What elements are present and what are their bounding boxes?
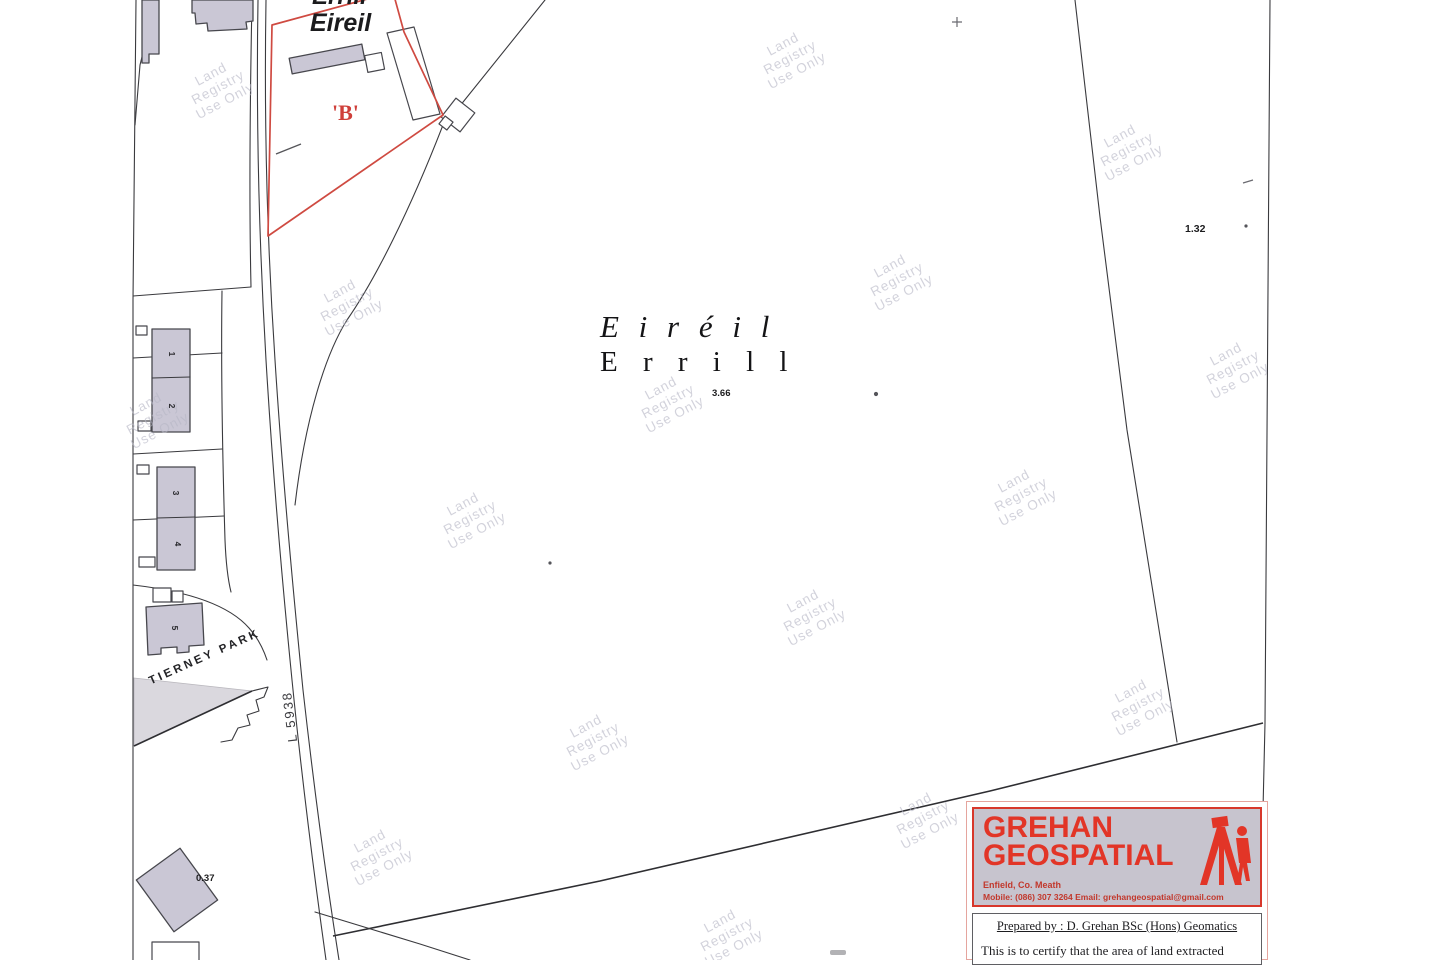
road-east-edge	[265, 0, 339, 960]
surveyor-contact: Mobile: (086) 307 3264 Email: grehangeos…	[983, 892, 1224, 902]
tripod-center-leg-icon	[1219, 839, 1224, 885]
outbuilding	[365, 52, 385, 72]
townland-name-english: E r r i l l	[600, 346, 796, 378]
land-registry-watermark: LandRegistryUse Only	[431, 482, 508, 552]
estate-parcel-line-3	[133, 449, 222, 454]
house-number-5: 5	[170, 626, 180, 631]
building	[387, 27, 440, 120]
surveyor-logo-panel: GREHAN GEOSPATIAL Enfield, Co. Meath Mob…	[972, 807, 1262, 907]
buildings	[136, 0, 475, 960]
east-boundary-line	[1263, 0, 1270, 810]
land-registry-watermark: LandRegistryUse Only	[554, 704, 631, 774]
top-left-parcel-right-edge	[250, 0, 252, 287]
dash-mark	[1243, 180, 1253, 183]
building	[142, 0, 159, 63]
surveyor-tripod-logo-icon	[1190, 815, 1256, 891]
parcel-b-label: 'B'	[332, 100, 359, 125]
outbuilding	[136, 326, 147, 335]
road-west-edge	[257, 0, 326, 960]
building	[192, 0, 253, 31]
land-registry-watermark: LandRegistryUse Only	[308, 269, 385, 339]
land-registry-watermark: LandRegistryUse Only	[884, 782, 961, 852]
area-label-center: 3.66	[712, 388, 731, 399]
scanned-land-registry-map-page: { "map": { "watermark": { "lines": ["Lan…	[0, 0, 1440, 960]
outbuilding	[139, 557, 155, 567]
house-number-2: 2	[167, 404, 177, 409]
land-registry-watermark: LandRegistryUse Only	[982, 459, 1059, 529]
townland-name-irish: E i r é i l	[599, 309, 775, 344]
surveyor-stamp: GREHAN GEOSPATIAL Enfield, Co. Meath Mob…	[966, 801, 1268, 960]
land-registry-watermark: LandRegistryUse Only	[858, 244, 935, 314]
townland-label-small: Eireil	[310, 9, 372, 37]
land-registry-watermark: LandRegistryUse Only	[771, 579, 848, 649]
estate-parcel-line-1	[133, 287, 251, 296]
road-ref-label: L 5938	[279, 690, 300, 743]
outbuilding	[153, 588, 171, 602]
house-number-1: 1	[167, 352, 177, 357]
blurred-label-fragment	[830, 950, 846, 955]
northeast-parcel-west-boundary	[1075, 0, 1177, 742]
land-registry-watermark: LandRegistryUse Only	[688, 899, 765, 960]
west-boundary-line	[133, 0, 136, 960]
outbuilding	[137, 465, 149, 474]
cross-mark	[952, 17, 962, 27]
survey-tick	[276, 144, 301, 154]
outbuilding	[172, 591, 183, 602]
certificate-panel: Prepared by : D. Grehan BSc (Hons) Geoma…	[972, 913, 1262, 965]
land-registry-watermark: LandRegistryUse Only	[179, 52, 256, 122]
surveyor-address: Enfield, Co. Meath	[983, 880, 1061, 890]
certify-text: This is to certify that the area of land…	[981, 943, 1253, 959]
building	[289, 44, 365, 74]
dot-mark	[1244, 224, 1247, 227]
building-partial	[152, 942, 199, 960]
estate-front-boundary	[222, 291, 231, 592]
theodolite-icon	[1211, 816, 1228, 828]
land-registry-watermark: LandRegistryUse Only	[1194, 332, 1271, 402]
house-block-3-4	[157, 467, 195, 570]
area-label-southwest: 0.37	[196, 873, 215, 884]
land-registry-watermark: LandRegistryUse Only	[1099, 669, 1176, 739]
land-registry-watermark: LandRegistryUse Only	[751, 22, 828, 92]
house-number-4: 4	[173, 542, 183, 547]
surveyor-figure-body-icon	[1236, 838, 1251, 881]
area-label-northeast: 1.32	[1185, 223, 1206, 235]
dot-mark	[874, 392, 878, 396]
prepared-by-text: Prepared by : D. Grehan BSc (Hons) Geoma…	[981, 919, 1253, 934]
land-registry-watermark: LandRegistryUse Only	[338, 819, 415, 889]
land-registry-watermark: LandRegistryUse Only	[1088, 114, 1165, 184]
map-labels: Errill Eireil 'B' E i r é i l E r r i l …	[147, 0, 1205, 884]
surveyor-figure-head-icon	[1237, 826, 1247, 836]
house-number-3: 3	[171, 491, 181, 496]
building	[136, 848, 217, 932]
dot-mark	[548, 561, 551, 564]
